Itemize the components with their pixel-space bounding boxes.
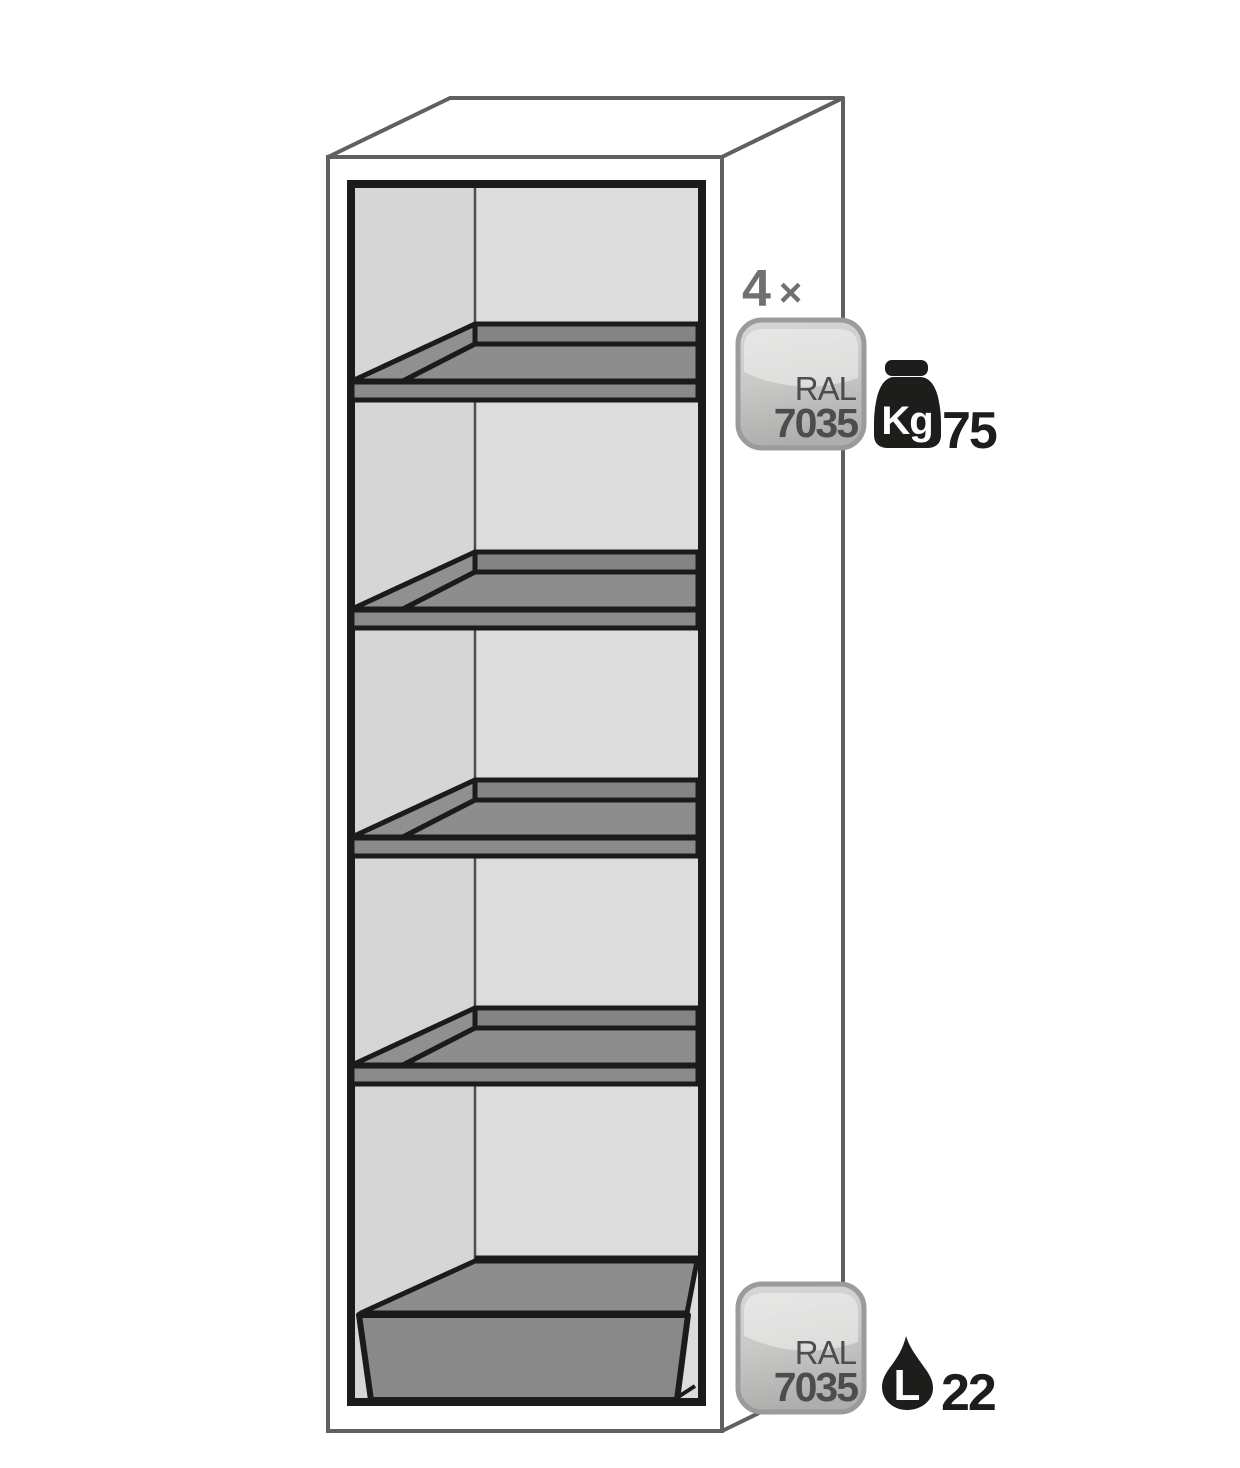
weight-kg-icon: Kg: [874, 360, 941, 448]
kg-unit-label: Kg: [881, 399, 932, 443]
liter-drop-icon: L: [882, 1336, 933, 1410]
liter-unit-label: L: [894, 1361, 921, 1410]
load-value: 75: [942, 402, 997, 460]
sump-volume: L 22: [882, 1336, 995, 1422]
diagram-page: 4× RAL 7035 Kg 75 RAL 7035 L 22: [0, 0, 1240, 1468]
sump-front-face: [359, 1315, 688, 1400]
load-capacity: Kg 75: [874, 360, 997, 460]
cabinet-diagram: 4× RAL 7035 Kg 75 RAL 7035 L 22: [0, 0, 1240, 1468]
ral-badge-sump: RAL 7035: [738, 1284, 864, 1412]
volume-value: 22: [941, 1364, 995, 1422]
ral-badge-shelf-line2: 7035: [774, 400, 858, 446]
ral-badge-shelf: RAL 7035: [738, 320, 864, 448]
ral-badge-sump-line2: 7035: [774, 1364, 858, 1410]
